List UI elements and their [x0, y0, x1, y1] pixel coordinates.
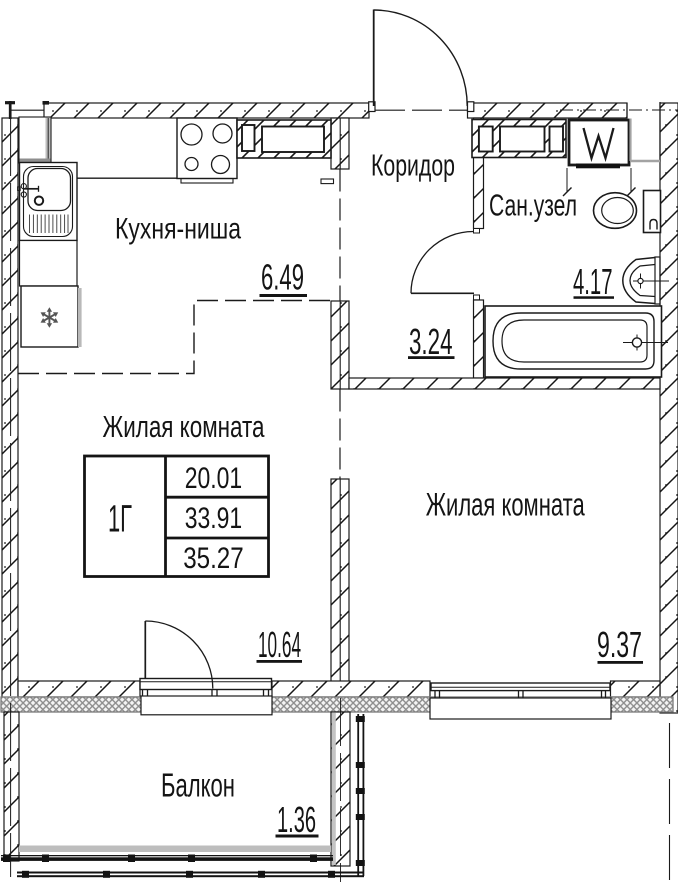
svg-text:Кухня-ниша: Кухня-ниша	[115, 213, 241, 246]
svg-text:10.64: 10.64	[258, 624, 301, 665]
svg-text:Сан.узел: Сан.узел	[489, 188, 577, 223]
svg-text:1.36: 1.36	[277, 799, 316, 840]
svg-text:3.24: 3.24	[409, 321, 453, 362]
svg-text:Жилая комната: Жилая комната	[103, 409, 266, 444]
svg-text:1Г: 1Г	[108, 499, 132, 541]
svg-text:33.91: 33.91	[185, 502, 243, 535]
svg-text:35.27: 35.27	[183, 542, 244, 575]
svg-text:Коридор: Коридор	[371, 148, 455, 183]
svg-text:Балкон: Балкон	[161, 767, 235, 804]
svg-text:4.17: 4.17	[573, 261, 613, 302]
svg-text:Жилая комната: Жилая комната	[426, 487, 585, 523]
svg-text:6.49: 6.49	[261, 257, 304, 298]
svg-text:20.01: 20.01	[185, 462, 243, 495]
svg-text:9.37: 9.37	[597, 624, 642, 665]
